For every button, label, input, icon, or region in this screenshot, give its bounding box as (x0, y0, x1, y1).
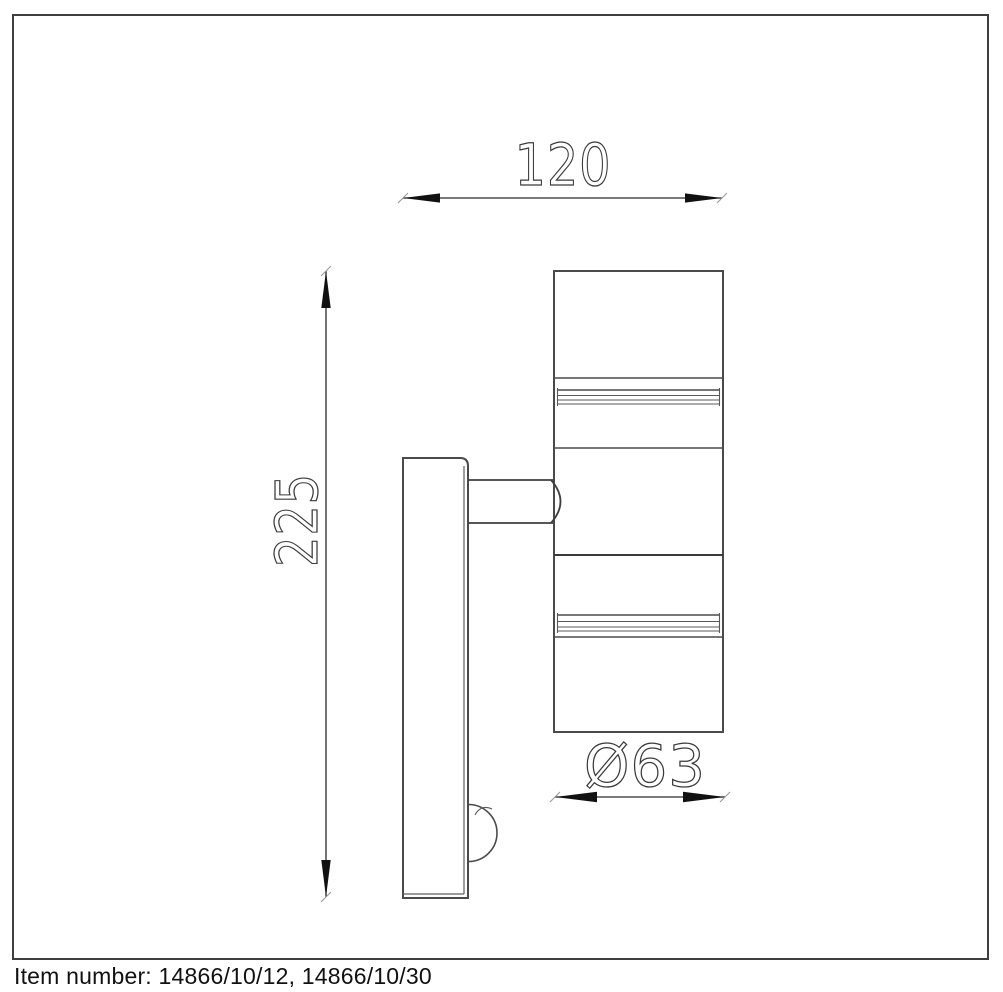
dimension-diameter: Ø63 (550, 732, 730, 802)
dim-width-arrowhead-right-icon (685, 193, 722, 202)
technical-drawing: 120 225 Ø63 (0, 0, 1003, 992)
dim-width-label: 120 (515, 131, 612, 199)
dimension-width: 120 (398, 131, 727, 203)
dimension-height: 225 (263, 266, 331, 902)
lamp-fixture (403, 271, 723, 898)
technical-drawing-page: { "page": { "background": "#ffffff" }, "… (0, 0, 1003, 992)
dim-height-label: 225 (263, 473, 331, 567)
mounting-arm (468, 480, 555, 523)
lamp-body (554, 271, 723, 732)
wall-plate (403, 458, 468, 898)
item-number-text: Item number: 14866/10/12, 14866/10/30 (14, 963, 432, 990)
dim-height-arrowhead-bottom-icon (321, 860, 330, 897)
dim-width-arrowhead-left-icon (403, 193, 440, 202)
dim-height-arrowhead-top-icon (321, 271, 330, 308)
dim-diameter-label: Ø63 (584, 732, 706, 800)
